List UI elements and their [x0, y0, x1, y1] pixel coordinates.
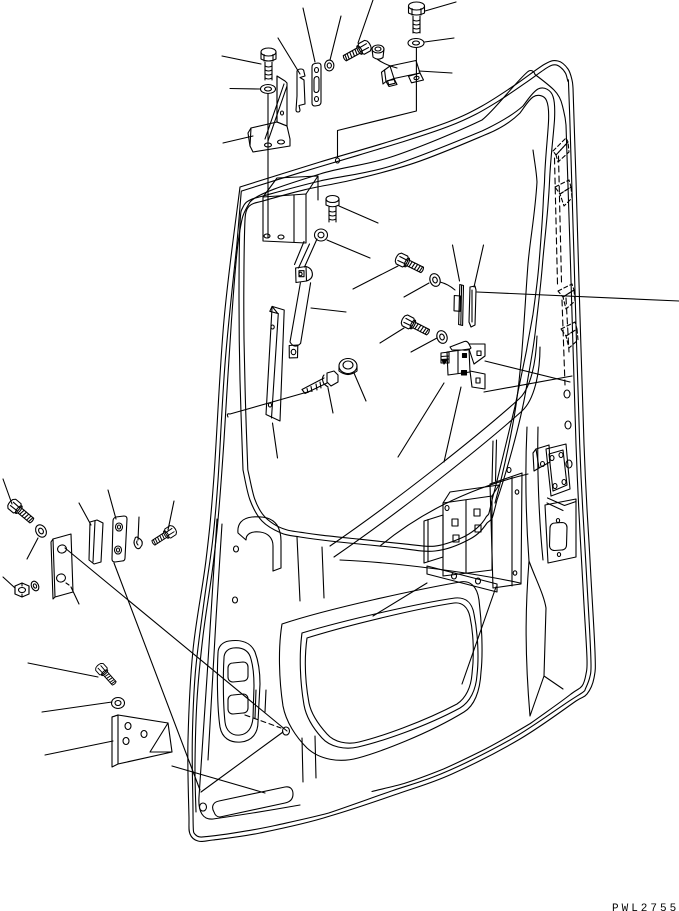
svg-text:PWL2755: PWL2755 — [612, 903, 679, 911]
